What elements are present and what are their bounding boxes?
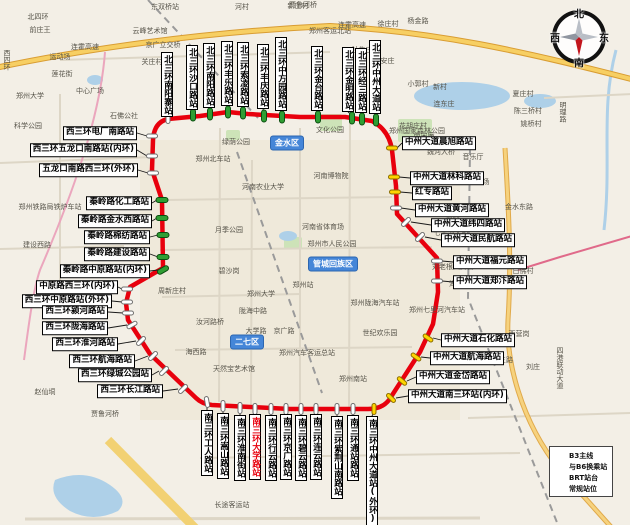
legend-swatch	[553, 453, 566, 458]
map-place-label: 天然宝艺术馆	[213, 364, 255, 374]
map-place-label: 夏庄村	[513, 89, 534, 99]
station-marker[interactable]	[207, 108, 213, 121]
map-place-name: 新庄村	[288, 2, 309, 10]
station-label[interactable]: 北三环中方园路站	[275, 37, 287, 111]
map-place-name: 文化公园	[316, 126, 344, 134]
map-place-label: 小郭村	[408, 79, 429, 89]
legend-row: BRT站台	[553, 472, 609, 483]
station-name: 五龙口南路西三环(外环)	[42, 164, 135, 174]
station-marker[interactable]	[389, 190, 401, 195]
station-name: 中州大道林科路站	[413, 172, 481, 182]
map-place-label: 四港联动大道	[555, 347, 565, 389]
district-badge: 金水区	[270, 136, 304, 151]
station-label[interactable]: 五龙口南路西三环(外环)	[39, 163, 138, 177]
map-place-name: 天然宝艺术馆	[213, 365, 255, 373]
station-name: 南三环紫荆山南路站	[333, 419, 343, 496]
map-place-name: 海西路	[186, 348, 207, 356]
station-marker[interactable]	[157, 254, 170, 260]
legend-row: B3主线	[553, 450, 609, 461]
station-name: 南三环京广路站	[282, 417, 292, 477]
map-place-label: 世纪欢乐园	[363, 328, 398, 338]
station-marker[interactable]	[225, 106, 231, 119]
map-place-name: 京广路	[274, 327, 295, 335]
station-label[interactable]: 秦岭路化工路站	[86, 196, 152, 210]
map-place-label: 京广路	[274, 326, 295, 336]
map-place-label: 杨金路	[408, 16, 429, 26]
map-place-label: 河南农业大学	[242, 182, 284, 192]
station-label[interactable]: 中州大道黄河路站	[415, 203, 489, 217]
map-place-name: 郑州大学	[247, 290, 275, 298]
station-marker[interactable]	[146, 134, 158, 139]
map-place-label: 长途客运站	[215, 500, 250, 510]
map-place-name: 贾鲁河桥	[91, 410, 119, 418]
station-marker[interactable]	[221, 400, 226, 412]
map-place-label: 陇海中路	[239, 306, 267, 316]
map-place-name: 前庄王	[30, 26, 51, 34]
station-name: 西三环长江路站	[100, 385, 160, 395]
map-place-label: 西四环	[2, 50, 12, 71]
map-place-name: 姚桥村	[521, 120, 542, 128]
legend-label: 常规站位	[569, 484, 597, 494]
map-place-name: 郑州汽车客运总站	[279, 349, 335, 357]
map-place-name: 石佛公社	[110, 112, 138, 120]
map-place-label: 郑州客运北站	[309, 26, 351, 36]
station-marker[interactable]	[261, 110, 267, 123]
station-name: 中州大道民航路站	[444, 234, 512, 244]
station-label[interactable]: 北三环丰乐路站	[221, 41, 233, 107]
map-place-name: 赵仙垌	[35, 388, 56, 396]
legend-swatch	[553, 464, 566, 469]
station-name: 秦岭路棉纺路站	[87, 231, 147, 241]
station-name: 南三环淮南街站	[236, 418, 246, 478]
station-name: 北三环金明路站	[344, 50, 354, 110]
station-marker[interactable]	[349, 112, 355, 125]
district-name: 管城回族区	[313, 260, 353, 269]
station-marker[interactable]	[372, 403, 377, 415]
map-place-label: 姚桥村	[521, 119, 542, 129]
station-label[interactable]: 南三环大学路站	[249, 414, 261, 480]
station-name: 中州大道纬四路站	[434, 219, 502, 229]
map-place-label: 绿荫公园	[222, 137, 250, 147]
map-place-label: 郑州铁路局铁炉车站	[19, 202, 82, 212]
map-place-label: 文化公园	[316, 125, 344, 135]
map-place-name: 河南省体育场	[302, 223, 344, 231]
station-name: 秦岭路中原路站(内环)	[63, 265, 147, 275]
map-place-label: 郑州汽车客运总站	[279, 348, 335, 358]
map-place-name: 郑州站	[293, 281, 314, 289]
map-place-name: 刘庄	[526, 363, 540, 371]
station-label[interactable]: 南三环行云路站	[265, 415, 277, 481]
station-label[interactable]: 北三环金明路站	[342, 47, 354, 113]
station-label[interactable]: 南三环紫荆山南路站	[331, 416, 343, 499]
compass-west-label: 西	[550, 30, 560, 45]
station-marker[interactable]	[269, 403, 274, 415]
station-label[interactable]: 西三环电厂南路站	[63, 126, 137, 140]
station-label[interactable]: 南三环中州大道站(外环)	[366, 416, 378, 525]
station-label[interactable]: 北三环南阳寨站	[161, 52, 173, 118]
compass-north-label: 北	[574, 6, 584, 21]
station-marker[interactable]	[390, 206, 402, 211]
map-place-label: 月季公园	[215, 225, 243, 235]
legend-row: 与B6换乘站	[553, 461, 609, 472]
map-place-name: 新村	[433, 83, 447, 91]
station-marker[interactable]	[373, 114, 379, 127]
station-label[interactable]: 秦岭路金水西路站	[78, 214, 152, 228]
station-name: 中州大道福元路站	[456, 256, 524, 266]
map-place-name: 郑州国家森林公园	[389, 127, 445, 135]
compass-south-label: 南	[574, 55, 584, 70]
map-place-label: 郑州大学	[247, 289, 275, 299]
station-label[interactable]: 秦岭路建设路站	[84, 247, 150, 261]
map-place-name: 明理路	[559, 102, 567, 123]
legend-label: BRT站台	[569, 473, 598, 483]
map-place-name: 陈三桥村	[514, 107, 542, 115]
station-label[interactable]: 西三环五龙口南路站(内环)	[30, 143, 137, 157]
map-place-name: 长途客运站	[215, 501, 250, 509]
district-name: 二七区	[235, 338, 259, 347]
map-place-label: 郑州站	[293, 280, 314, 290]
map-place-name: 郑州七里河汽车站	[409, 306, 465, 314]
map-place-label: 莲花街	[52, 69, 73, 79]
station-label[interactable]: 北三环南阳路站	[203, 43, 215, 109]
map-place-label: 周新庄村	[158, 286, 186, 296]
station-marker[interactable]	[146, 154, 158, 159]
station-label[interactable]: 中州大道晨旭路站	[402, 136, 476, 150]
station-label[interactable]: 红专路站	[412, 186, 452, 200]
station-label[interactable]: 秦岭路中原路站(内环)	[60, 264, 150, 278]
map-place-name: 郑州市人民公园	[308, 240, 357, 248]
station-name: 北三环沙口路站	[188, 48, 198, 108]
map-canvas[interactable]: 北三环南阳寨站 北三环沙口路站 北三环南阳路站 北三环丰乐路站 北三环索凌路站 …	[0, 0, 630, 525]
station-label[interactable]: 北三环中州大道站	[369, 40, 381, 114]
station-name: 中州大道郑汴路站	[456, 276, 524, 286]
map-place-label: 中心广场	[76, 86, 104, 96]
map-place-name: 月季公园	[215, 226, 243, 234]
station-name: 北三环丰庆路站	[259, 47, 269, 107]
compass-east-label: 东	[599, 30, 609, 45]
map-place-name: 绿荫公园	[222, 138, 250, 146]
map-place-name: 徐庄村	[378, 20, 399, 28]
station-name: 中州大道黄河路站	[418, 204, 486, 214]
map-place-label: 连东庄	[434, 99, 455, 109]
map-place-name: 汝河路桥	[196, 318, 224, 326]
station-marker[interactable]	[190, 109, 196, 122]
suburban-line-east	[518, 236, 630, 270]
map-place-name: 金水东路	[505, 203, 533, 211]
station-name: 南三环中州大道站(外环)	[368, 419, 378, 524]
map-legend: B3主线 与B6换乘站 BRT站台 常规站位	[549, 446, 613, 497]
station-marker[interactable]	[156, 215, 169, 221]
map-place-name: 郑州铁路局铁炉车站	[19, 203, 82, 211]
map-place-label: 郑州南站	[339, 374, 367, 384]
map-place-label: 陈三桥村	[514, 106, 542, 116]
station-label[interactable]: 中州大道航海路站	[430, 351, 504, 365]
map-place-name: 四港联动大道	[556, 347, 564, 389]
station-marker[interactable]	[299, 403, 304, 415]
station-label[interactable]: 中州大道纬四路站	[431, 218, 505, 232]
station-marker[interactable]	[147, 171, 159, 176]
map-place-name: 郑州陇海汽车站	[351, 299, 400, 307]
station-marker[interactable]	[335, 403, 340, 415]
map-place-label: 海西路	[186, 347, 207, 357]
station-name: 北三环经三路站	[357, 51, 367, 111]
station-marker[interactable]	[279, 111, 285, 124]
map-place-name: 郑州南站	[339, 375, 367, 383]
station-name: 秦岭路化工路站	[89, 197, 149, 207]
map-place-label: 东双桥站	[151, 2, 179, 12]
map-place-name: 运动场	[50, 53, 71, 61]
map-place-label: 新庄村	[288, 1, 309, 11]
map-place-label: 郑州市人民公园	[308, 239, 357, 249]
station-label[interactable]: 南三环碧云路站	[295, 415, 307, 481]
legend-swatch	[553, 475, 566, 480]
station-label[interactable]: 北三环索凌路站	[237, 42, 249, 108]
station-marker[interactable]	[431, 259, 443, 264]
station-marker[interactable]	[388, 175, 400, 180]
map-place-label: 科学公园	[14, 121, 42, 131]
map-place-name: 郑州大学	[16, 92, 44, 100]
legend-label: 与B6换乘站	[569, 462, 607, 472]
legend-swatch	[553, 486, 566, 491]
station-name: 红专路站	[415, 187, 449, 197]
station-marker[interactable]	[240, 107, 246, 120]
legend-row: 常规站位	[553, 483, 609, 494]
station-name: 南三环通站路站	[349, 418, 359, 478]
map-place-name: 河南博物院	[314, 172, 349, 180]
station-label[interactable]: 西三环绿城公园站	[78, 368, 152, 382]
station-label[interactable]: 北三环沙口路站	[186, 45, 198, 111]
map-place-label: 河南省体育场	[302, 222, 344, 232]
station-marker[interactable]	[315, 111, 321, 124]
station-name: 南三环嵩山路站	[219, 416, 229, 476]
map-place-label: 运动场	[50, 52, 71, 62]
map-place-label: 汝河路桥	[196, 317, 224, 327]
station-name: 中原路西三环(内环)	[39, 281, 115, 291]
station-label[interactable]: 中州大道石化路站	[441, 333, 515, 347]
district-badge: 二七区	[230, 335, 264, 350]
station-label[interactable]: 西三环颍河路站	[42, 305, 108, 319]
station-label[interactable]: 南三环工人路站	[201, 410, 213, 476]
station-name: 南三环工人路站	[203, 413, 213, 473]
map-place-name: 小郭村	[408, 80, 429, 88]
map-place-name: 京广立交桥	[146, 41, 181, 49]
station-marker[interactable]	[121, 300, 133, 305]
map-place-name: 连霍高速	[71, 43, 99, 51]
map-place-name: 世纪欢乐园	[363, 329, 398, 337]
station-name: 中州大道航海路站	[433, 352, 501, 362]
station-label[interactable]: 秦岭路棉纺路站	[84, 230, 150, 244]
legend-label: B3主线	[569, 451, 593, 461]
map-place-name: 杨金路	[408, 17, 429, 25]
map-place-label: 刘庄	[526, 362, 540, 372]
station-name: 南三环大学路站	[251, 417, 261, 477]
map-place-label: 徐庄村	[378, 19, 399, 29]
station-name: 中州大道晨旭路站	[405, 137, 473, 147]
station-name: 西三环绿城公园站	[81, 369, 149, 379]
map-place-label: 关庄村	[142, 57, 163, 67]
station-label[interactable]: 中州大道林科路站	[410, 171, 484, 185]
station-name: 西三环航海路站	[72, 355, 132, 365]
map-place-name: 云峰艺术馆	[133, 27, 168, 35]
map-place-name: 碧沙岗	[219, 267, 240, 275]
station-label[interactable]: 南三环京广路站	[280, 414, 292, 480]
map-place-name: 连东庄	[434, 100, 455, 108]
station-label[interactable]: 中州大道福元路站	[453, 255, 527, 269]
road-southwest	[108, 440, 195, 525]
district-badge: 管城回族区	[308, 257, 358, 272]
map-place-name: 北四环	[28, 13, 49, 21]
station-label[interactable]: 西三环航海路站	[69, 354, 135, 368]
station-name: 北三环金台路站	[313, 49, 323, 109]
station-label[interactable]: 中州大道金岱路站	[416, 370, 490, 384]
map-place-label: 建设西路	[23, 240, 51, 250]
station-label[interactable]: 北三环丰庆路站	[257, 44, 269, 110]
map-place-name: 关庄村	[142, 58, 163, 66]
station-name: 秦岭路金水西路站	[81, 215, 149, 225]
map-place-name: 中心广场	[76, 87, 104, 95]
map-place-name: 周新庄村	[158, 287, 186, 295]
map-place-label: 明理路	[558, 102, 568, 123]
station-name: 西三环中原路站(外环)	[25, 295, 109, 305]
map-place-name: 音乐厅	[463, 153, 484, 161]
map-place-name: 建设西路	[23, 241, 51, 249]
map-place-label: 郑州北车站	[196, 154, 231, 164]
station-name: 南三环碧云路站	[297, 418, 307, 478]
map-place-label: 贾鲁河桥	[91, 409, 119, 419]
map-place-label: 音乐厅	[463, 152, 484, 162]
station-name: 南三环连云路站	[312, 417, 322, 477]
map-place-label: 前庄王	[30, 25, 51, 35]
station-name: 西三环五龙口南路站(内环)	[33, 144, 134, 154]
station-label[interactable]: 中州大道民航路站	[441, 233, 515, 247]
map-place-label: 连霍高速	[71, 42, 99, 52]
map-place-name: 河村	[235, 3, 249, 11]
map-place-label: 郑州大学	[16, 91, 44, 101]
station-name: 中州大道南三环站(内环)	[411, 390, 504, 400]
station-name: 中州大道石化路站	[444, 334, 512, 344]
map-place-name: 西四环	[3, 50, 11, 71]
map-place-name: 莲花街	[52, 70, 73, 78]
map-place-name: 河南农业大学	[242, 183, 284, 191]
station-marker[interactable]	[122, 311, 134, 316]
station-label[interactable]: 西三环陇海路站	[42, 321, 108, 335]
map-place-label: 北四环	[28, 12, 49, 22]
map-place-label: 新村	[433, 82, 447, 92]
station-marker[interactable]	[157, 232, 170, 238]
map-place-label: 郑州陇海汽车站	[351, 298, 400, 308]
station-label[interactable]: 南三环通站路站	[347, 415, 359, 481]
map-place-name: 郑州客运北站	[309, 27, 351, 35]
map-place-name: 郑州北车站	[196, 155, 231, 163]
compass-rose: 北 西 东 南	[548, 6, 610, 68]
station-label[interactable]: 中原路西三环(内环)	[36, 280, 118, 294]
station-marker[interactable]	[359, 113, 365, 126]
station-name: 北三环南阳寨站	[163, 55, 173, 115]
station-name: 秦岭路建设路站	[87, 248, 147, 258]
station-name: 北三环中州大道站	[371, 43, 381, 111]
station-label[interactable]: 西三环长江路站	[97, 384, 163, 398]
station-marker[interactable]	[431, 279, 443, 284]
station-marker[interactable]	[386, 146, 398, 151]
station-marker[interactable]	[238, 402, 243, 414]
station-label[interactable]: 南三环淮南街站	[234, 415, 246, 481]
station-label[interactable]: 中州大道郑汴路站	[453, 275, 527, 289]
station-marker[interactable]	[351, 403, 356, 415]
station-name: 北三环丰乐路站	[223, 44, 233, 104]
map-place-label: 赵仙垌	[35, 387, 56, 397]
station-marker[interactable]	[156, 197, 169, 203]
map-place-name: 东双桥站	[151, 3, 179, 11]
map-place-label: 碧沙岗	[219, 266, 240, 276]
map-place-label: 河南博物院	[314, 171, 349, 181]
map-place-label: 石佛公社	[110, 111, 138, 121]
station-label[interactable]: 中州大道南三环站(内环)	[408, 389, 507, 403]
station-name: 西三环电厂南路站	[66, 127, 134, 137]
station-marker[interactable]	[121, 287, 133, 292]
station-name: 北三环中方园路站	[277, 40, 287, 108]
map-place-label: 京广立交桥	[146, 40, 181, 50]
station-name: 中州大道金岱路站	[419, 371, 487, 381]
map-place-name: 陇海中路	[239, 307, 267, 315]
station-name: 西三环陇海路站	[45, 322, 105, 332]
station-label[interactable]: 北三环金台路站	[311, 46, 323, 112]
map-place-name: 夏庄村	[513, 90, 534, 98]
map-place-label: 金水东路	[505, 202, 533, 212]
station-name: 西三环颍河路站	[45, 306, 105, 316]
map-place-label: 郑州国家森林公园	[389, 126, 445, 136]
station-name: 北三环索凌路站	[239, 45, 249, 105]
station-label[interactable]: 南三环嵩山路站	[217, 413, 229, 479]
station-label[interactable]: 西三环淮河路站	[52, 337, 118, 351]
station-name: 南三环行云路站	[267, 418, 277, 478]
map-place-label: 河村	[235, 2, 249, 12]
map-place-label: 云峰艺术馆	[133, 26, 168, 36]
map-place-label: 郑州七里河汽车站	[409, 305, 465, 315]
station-name: 北三环南阳路站	[205, 46, 215, 106]
district-name: 金水区	[275, 139, 299, 148]
station-label[interactable]: 南三环连云路站	[310, 414, 322, 480]
map-place-name: 科学公园	[14, 122, 42, 130]
station-name: 西三环淮河路站	[55, 338, 115, 348]
station-label[interactable]: 北三环经三路站	[355, 48, 367, 114]
